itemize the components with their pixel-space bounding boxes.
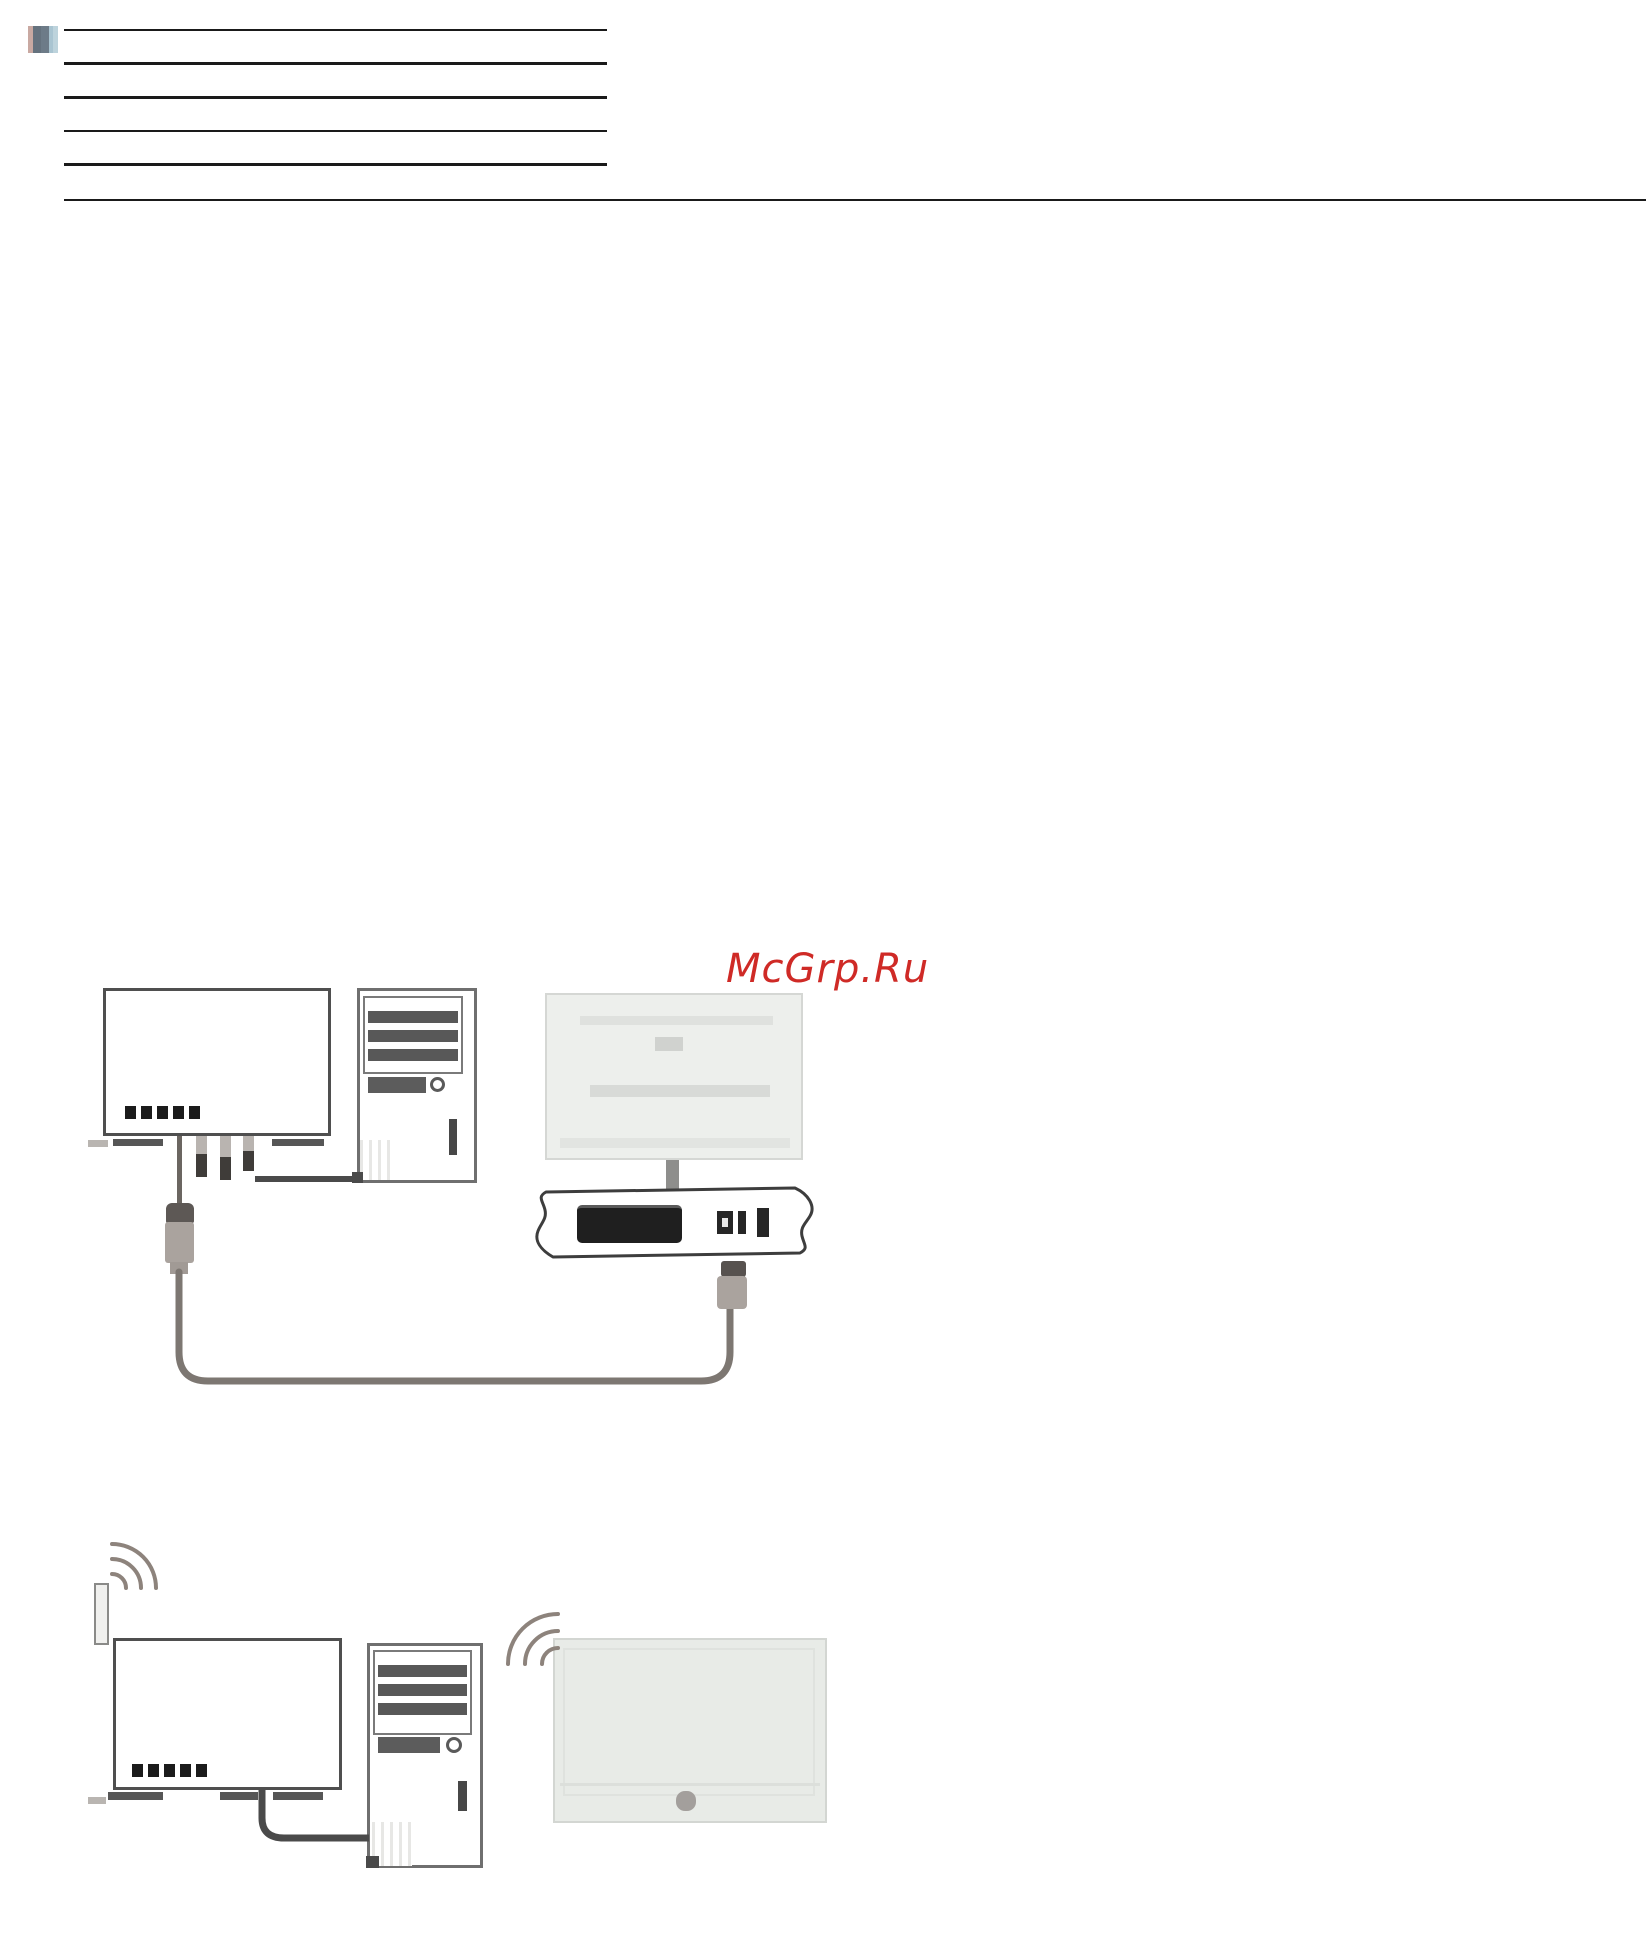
header-rule-1 xyxy=(64,29,607,31)
modem-led-row xyxy=(125,1106,200,1119)
page-thumbnail-icon xyxy=(28,26,58,53)
drive-bay-slat xyxy=(378,1703,467,1715)
led-indicator xyxy=(180,1764,191,1777)
modem-port-stub xyxy=(243,1136,254,1151)
slim-port xyxy=(738,1211,746,1234)
led-indicator xyxy=(196,1764,207,1777)
led-indicator xyxy=(164,1764,175,1777)
pc-foot xyxy=(366,1856,379,1868)
modem-port-stub xyxy=(220,1136,231,1157)
tv-rear-panel-band xyxy=(590,1085,770,1097)
pc-drive-bay xyxy=(373,1650,472,1735)
router-base-right xyxy=(273,1792,323,1800)
wifi-signal-tv xyxy=(508,1614,558,1664)
drive-bay-slat xyxy=(378,1684,467,1696)
led-indicator xyxy=(157,1106,168,1119)
tv-rear-label xyxy=(655,1037,683,1051)
led-indicator xyxy=(141,1106,152,1119)
header-rule-5 xyxy=(64,163,607,166)
manual-page: McGrp.Ru xyxy=(0,0,1646,1945)
page-divider-rule xyxy=(64,199,1646,201)
tv-rear-bottom-band xyxy=(560,1138,790,1148)
pc-foot xyxy=(352,1172,363,1183)
cable-plug-taper xyxy=(170,1262,188,1274)
header-rule-3 xyxy=(64,96,607,99)
modem-port-plug xyxy=(196,1154,207,1177)
drive-bay-slat xyxy=(368,1011,458,1023)
modem-base-right xyxy=(272,1139,324,1146)
modem-base-shadow xyxy=(88,1140,108,1147)
modem-port-plug xyxy=(243,1151,254,1171)
router-base-middle xyxy=(220,1792,258,1800)
cable-plug-body xyxy=(165,1222,194,1263)
cable-plug-head xyxy=(166,1203,194,1223)
pc-lower-bay xyxy=(368,1077,426,1093)
cable-loop xyxy=(179,1272,730,1381)
tv-inner-frame xyxy=(563,1648,815,1796)
modem-base-left xyxy=(113,1139,163,1146)
router-base-shadow xyxy=(88,1797,106,1804)
pc-power-button xyxy=(446,1737,462,1753)
vertical-port xyxy=(757,1208,769,1237)
pc-lower-bay xyxy=(378,1737,440,1753)
modem-port-stub xyxy=(196,1136,207,1154)
watermark-text: McGrp.Ru xyxy=(726,946,929,992)
drive-bay-slat xyxy=(378,1665,467,1677)
scart-port xyxy=(577,1205,682,1243)
tv-rear-panel-line xyxy=(580,1016,773,1025)
drive-bay-slat xyxy=(368,1030,458,1042)
header-rule-4 xyxy=(64,130,607,132)
pc-vent-slot xyxy=(458,1781,467,1811)
wifi-signal-router xyxy=(112,1544,156,1588)
modem-port-plug xyxy=(220,1157,231,1180)
header-rule-2 xyxy=(64,62,607,65)
drive-bay-slat xyxy=(368,1049,458,1061)
pc-vent-stripes xyxy=(360,1140,396,1180)
led-indicator xyxy=(125,1106,136,1119)
router-led-row xyxy=(132,1764,207,1777)
router-base-left xyxy=(108,1792,163,1800)
tv-bezel-line xyxy=(560,1783,820,1786)
router-antenna xyxy=(94,1583,109,1645)
pc-drive-bay xyxy=(363,996,463,1074)
modem-to-pc-cable xyxy=(255,1176,362,1182)
one-connect-plug-body xyxy=(717,1276,747,1309)
pc-power-button xyxy=(430,1077,445,1092)
led-indicator xyxy=(132,1764,143,1777)
pc-vent-slot xyxy=(449,1119,457,1155)
one-connect-plug-head xyxy=(721,1261,746,1277)
modem-plug-wire xyxy=(177,1136,182,1203)
led-indicator xyxy=(148,1764,159,1777)
led-indicator xyxy=(173,1106,184,1119)
led-indicator xyxy=(189,1106,200,1119)
tv-stand-nub xyxy=(676,1791,696,1811)
small-port xyxy=(717,1211,733,1234)
